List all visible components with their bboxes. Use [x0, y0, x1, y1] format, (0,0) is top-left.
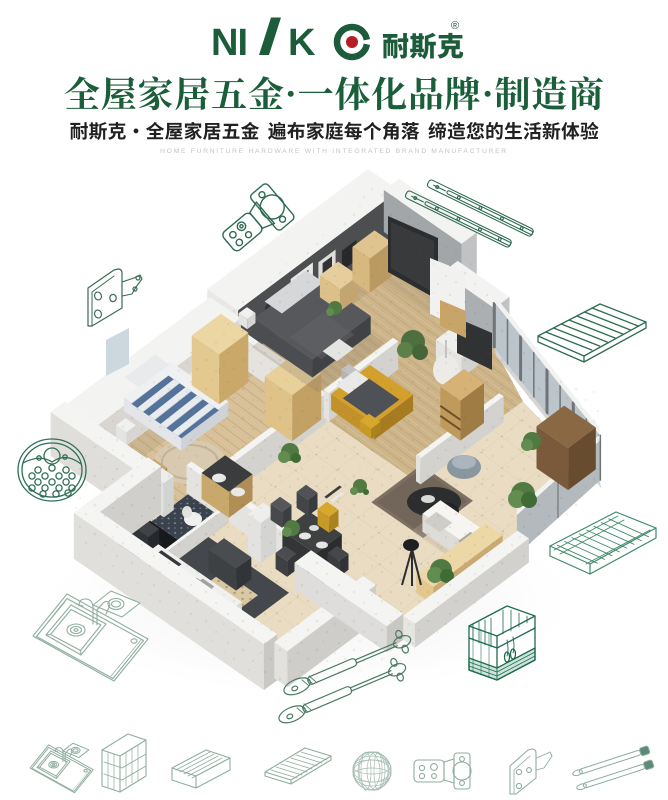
svg-text:K: K	[288, 22, 316, 64]
svg-text:®: ®	[451, 20, 459, 32]
svg-text:NI: NI	[211, 22, 247, 64]
